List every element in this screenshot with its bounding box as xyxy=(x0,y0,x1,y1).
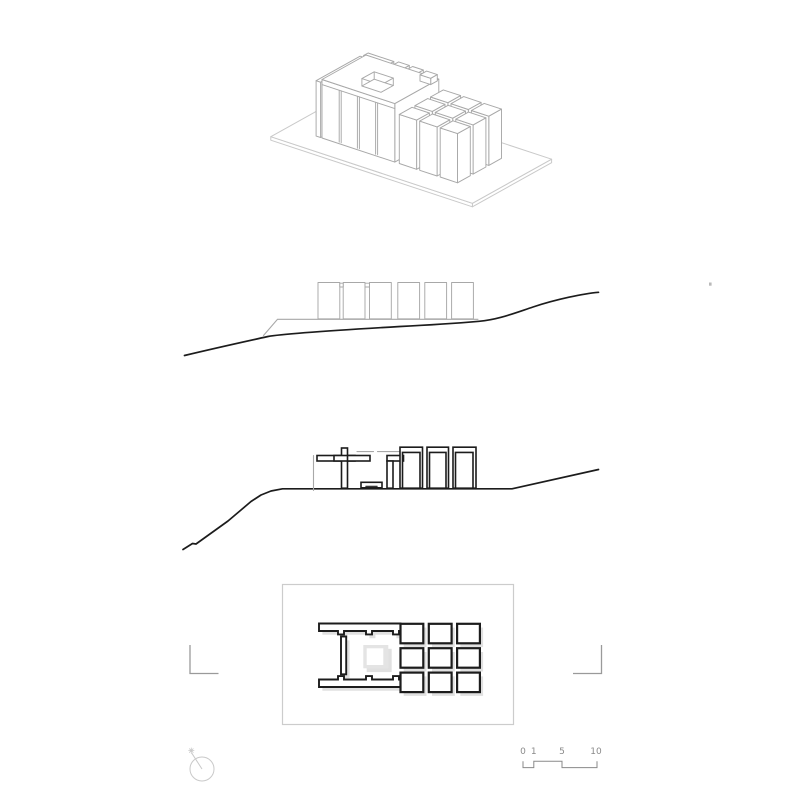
drawing-sheet: 0 1 5 10 xyxy=(0,0,800,800)
room-cell xyxy=(401,624,424,644)
scale-label-0: 0 xyxy=(520,747,526,757)
section-wall-mid xyxy=(342,448,348,488)
room-cell xyxy=(429,648,452,668)
section-roof-mid xyxy=(348,456,371,462)
room-cell xyxy=(457,624,480,644)
plan-wall-vertical xyxy=(341,637,346,675)
section-cut-mark-left-icon xyxy=(190,645,219,674)
scale-label-1: 1 xyxy=(531,747,537,757)
cube-volume-east-face xyxy=(458,127,471,183)
cube-volume-south-face xyxy=(440,128,457,183)
cube-volume-south-face xyxy=(420,121,437,176)
architectural-drawing-canvas: 0 1 5 10 xyxy=(0,0,800,800)
plan-room-grid xyxy=(401,624,484,696)
section-plinth xyxy=(361,482,382,488)
elevation-roof-connector xyxy=(365,283,370,287)
room-cell xyxy=(429,673,452,693)
north-arrow-sparkle xyxy=(188,748,194,754)
elevation-roof-connector xyxy=(340,283,343,287)
section-cube-channel xyxy=(453,447,476,488)
stray-dot xyxy=(709,283,712,286)
west-fin-slab-south-face xyxy=(316,81,321,138)
room-cell xyxy=(401,673,424,693)
cube-volume-south-face xyxy=(399,114,416,169)
cube-volume-east-face xyxy=(473,118,486,174)
section-view xyxy=(183,447,599,549)
elevation-volume xyxy=(425,283,447,319)
section-cube-channel xyxy=(427,447,449,488)
north-arrow-icon xyxy=(188,748,214,781)
elevation-volume xyxy=(343,283,365,319)
scale-bar-line xyxy=(523,761,597,767)
room-cell xyxy=(457,673,480,693)
cube-volume-east-face xyxy=(489,109,502,165)
scale-bar: 0 1 5 10 xyxy=(520,747,602,768)
plan-courtyard-inner xyxy=(367,648,384,665)
room-cell xyxy=(401,648,424,668)
plan-view xyxy=(283,585,514,725)
section-cube-channel xyxy=(400,447,423,488)
elevation-volume xyxy=(318,283,340,319)
elevation-volume xyxy=(452,283,474,319)
elevation-volumes xyxy=(318,283,473,319)
room-cell xyxy=(429,624,452,644)
elevation-volume xyxy=(398,283,420,319)
axonometric-view xyxy=(271,53,552,207)
section-wall-courtyard xyxy=(387,461,393,488)
elevation-view xyxy=(185,283,599,356)
scale-label-10: 10 xyxy=(590,747,602,757)
section-cut-mark-right-icon xyxy=(573,645,602,674)
scale-label-5: 5 xyxy=(559,747,565,757)
room-cell xyxy=(457,648,480,668)
elevation-volume xyxy=(370,283,392,319)
